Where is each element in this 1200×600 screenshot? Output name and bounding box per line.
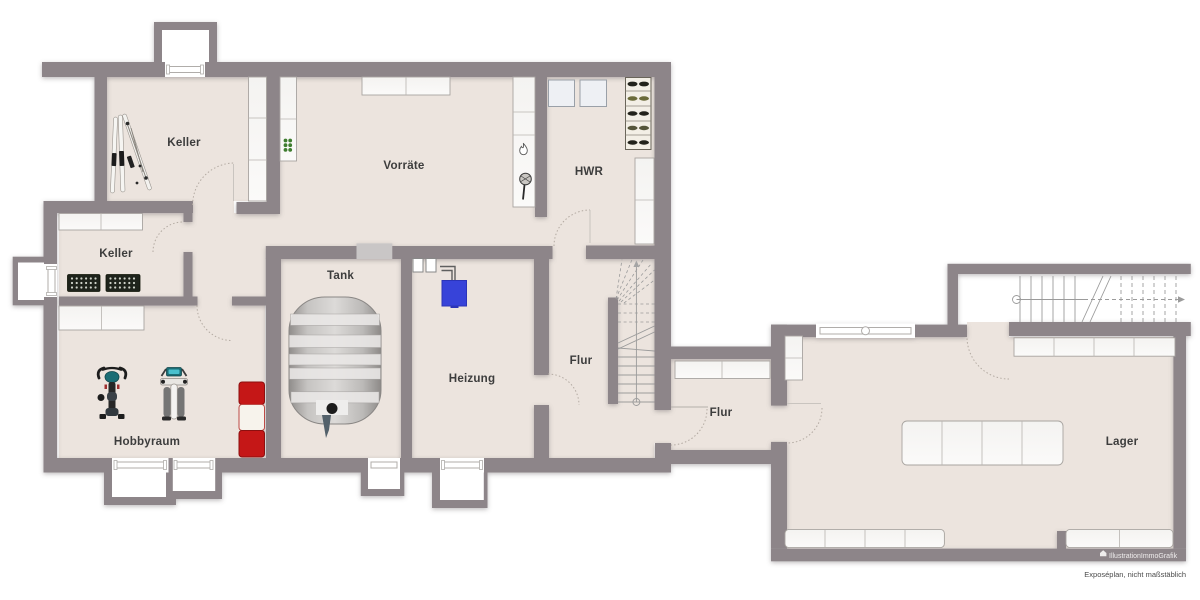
svg-text:Lager: Lager <box>1106 435 1139 448</box>
svg-text:Tank: Tank <box>327 269 354 282</box>
svg-text:Flur: Flur <box>570 354 593 367</box>
svg-text:Keller: Keller <box>99 247 133 260</box>
svg-text:Exposéplan, nicht maßstäblich: Exposéplan, nicht maßstäblich <box>1084 570 1186 579</box>
svg-text:Flur: Flur <box>710 406 733 419</box>
svg-text:HWR: HWR <box>575 165 604 178</box>
svg-text:Hobbyraum: Hobbyraum <box>114 435 180 448</box>
svg-text:Heizung: Heizung <box>449 372 495 385</box>
svg-text:Keller: Keller <box>167 136 201 149</box>
svg-text:IllustrationImmoGrafik: IllustrationImmoGrafik <box>1109 553 1178 560</box>
svg-text:Vorräte: Vorräte <box>383 159 424 172</box>
